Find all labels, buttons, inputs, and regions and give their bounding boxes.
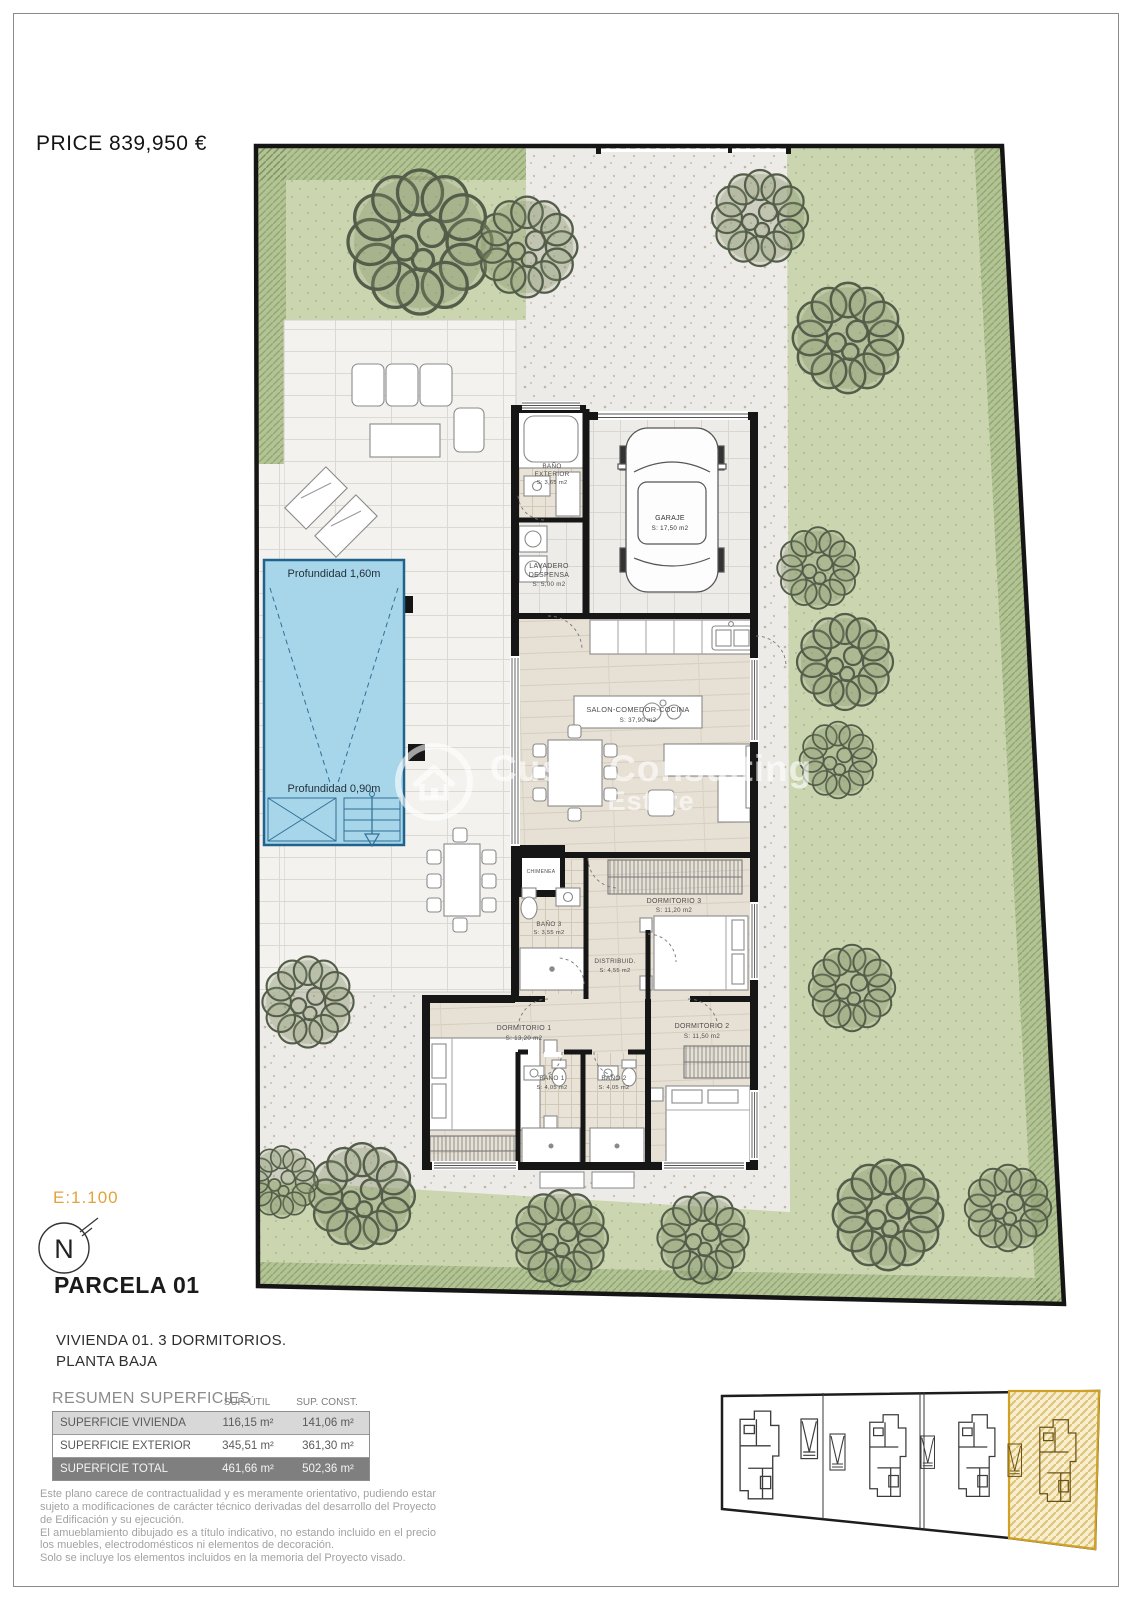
summary-title: RESUMEN SUPERFICIES xyxy=(52,1390,210,1408)
document-page: PRICE 839,950 € xyxy=(0,0,1132,1600)
room-label-chimenea: CHIMENEA xyxy=(527,869,556,875)
site-overview-map xyxy=(680,1380,1120,1565)
table-row: SUPERFICIE VIVIENDA 116,15 m² 141,06 m² xyxy=(53,1412,369,1434)
parcel-title: PARCELA 01 xyxy=(54,1272,200,1299)
svg-text:S: 17,50 m2: S: 17,50 m2 xyxy=(652,525,689,532)
north-compass-icon: N xyxy=(36,1214,116,1280)
svg-text:S: 3,55 m2: S: 3,55 m2 xyxy=(533,930,564,936)
disclaimer-text: Este plano carece de contractualidad y e… xyxy=(40,1488,436,1565)
svg-text:S: 4,05 m2: S: 4,05 m2 xyxy=(598,1085,629,1091)
room-label-dormitorio3: DORMITORIO 3 xyxy=(647,898,702,905)
pool-depth-bottom-label: Profundidad 0,90m xyxy=(288,783,381,795)
room-label-dormitorio2: DORMITORIO 2 xyxy=(675,1023,730,1030)
svg-text:EXTERIOR: EXTERIOR xyxy=(534,471,569,478)
room-label-bano1: BAÑO 1 xyxy=(539,1073,564,1082)
summary-table: RESUMEN SUPERFICIES SUP. ÚTIL SUP. CONST… xyxy=(52,1390,370,1481)
swimming-pool: Profundidad 1,60m Profundidad 0,90m xyxy=(264,560,404,846)
svg-text:S: 3,65 m2: S: 3,65 m2 xyxy=(536,480,567,486)
col-sup-const: SUP. CONST. xyxy=(284,1397,370,1408)
room-label-distribuidor: DISTRIBUID. xyxy=(594,958,635,965)
price-label: PRICE 839,950 € xyxy=(36,132,207,156)
scale-label: E:1.100 xyxy=(53,1188,119,1208)
table-row: SUPERFICIE EXTERIOR 345,51 m² 361,30 m² xyxy=(53,1434,369,1458)
pool-depth-top-label: Profundidad 1,60m xyxy=(288,568,381,580)
svg-text:S: 37,90 m2: S: 37,90 m2 xyxy=(620,717,657,724)
svg-text:DESPENSA: DESPENSA xyxy=(529,572,570,579)
room-label-bano-exterior: BAÑO xyxy=(542,461,561,470)
pillar xyxy=(408,744,425,761)
room-label-bano2: BAÑO 2 xyxy=(601,1073,626,1082)
svg-text:S: 5,00 m2: S: 5,00 m2 xyxy=(533,581,566,588)
dwelling-subtitle: VIVIENDA 01. 3 DORMITORIOS. PLANTA BAJA xyxy=(56,1330,286,1372)
svg-text:S: 4,05 m2: S: 4,05 m2 xyxy=(536,1085,567,1091)
room-label-bano3: BAÑO 3 xyxy=(536,919,561,928)
svg-text:S: 11,20 m2: S: 11,20 m2 xyxy=(656,907,692,914)
room-label-dormitorio1: DORMITORIO 1 xyxy=(497,1025,552,1032)
car xyxy=(618,428,726,592)
svg-text:S: 4,55 m2: S: 4,55 m2 xyxy=(599,968,630,974)
site-plan: Profundidad 1,60m Profundidad 0,90m xyxy=(230,130,1120,1320)
parcel-highlight xyxy=(1009,1391,1099,1549)
col-sup-util: SUP. ÚTIL xyxy=(210,1397,284,1408)
summary-table-header: RESUMEN SUPERFICIES SUP. ÚTIL SUP. CONST… xyxy=(52,1390,370,1411)
room-label-garaje: GARAJE xyxy=(655,515,685,522)
svg-text:S: 13,20 m2: S: 13,20 m2 xyxy=(506,1035,543,1042)
table-row-total: SUPERFICIE TOTAL 461,66 m² 502,36 m² xyxy=(53,1458,369,1480)
north-letter: N xyxy=(54,1234,74,1264)
room-label-salon: SALON-COMEDOR-COCINA xyxy=(586,705,689,714)
room-label-lavadero: LAVADERO xyxy=(529,563,569,570)
svg-text:S: 11,50 m2: S: 11,50 m2 xyxy=(684,1033,720,1040)
